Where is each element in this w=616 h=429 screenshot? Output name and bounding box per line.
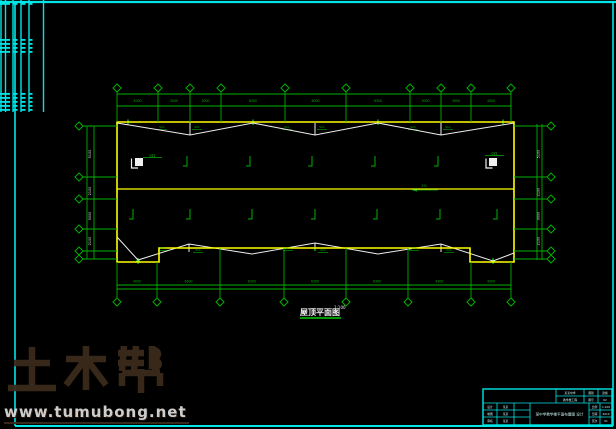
titleblock-cell: 01 xyxy=(604,419,608,423)
dim-text-vertical: 2100 xyxy=(537,237,541,246)
dim-text-vertical: 5100 xyxy=(537,150,541,159)
grid-bubble xyxy=(547,225,555,233)
column-symbol xyxy=(489,158,497,166)
brace-label: SC1 xyxy=(446,248,452,252)
grid-bubble xyxy=(406,84,414,92)
grid-bubble xyxy=(154,84,162,92)
grid-bubble xyxy=(467,84,475,92)
dim-text-vertical: 5100 xyxy=(88,150,92,159)
titleblock-cell: 某某中学 xyxy=(564,391,575,395)
column-mark xyxy=(186,209,190,219)
grid-bubble xyxy=(547,247,555,255)
grid-bubble xyxy=(547,255,555,263)
brace-label: SC1 xyxy=(445,125,451,129)
column-mark xyxy=(373,209,377,219)
grid-bubble xyxy=(437,84,445,92)
titleblock-cell: 建施 xyxy=(602,391,608,395)
grid-bubble xyxy=(547,122,555,130)
grid-bubble xyxy=(216,298,224,306)
building-outline xyxy=(117,122,514,262)
brace-label: SC1 xyxy=(319,125,325,129)
column-symbol xyxy=(135,158,143,166)
titleblock-cell: 审核 xyxy=(487,419,493,423)
grid-bubble xyxy=(507,84,515,92)
brace-label: SC1 xyxy=(411,246,417,250)
dim-text: 3000 xyxy=(201,99,209,103)
column-mark xyxy=(436,209,440,219)
column-mark xyxy=(434,156,438,166)
watermark-brand-icon xyxy=(4,340,172,398)
titleblock-cell: 比例 xyxy=(592,405,598,409)
column-mark xyxy=(129,209,133,219)
grid-bubble xyxy=(281,84,289,92)
dim-text-vertical: 3000 xyxy=(537,212,541,221)
brace-label: SC1 xyxy=(195,248,201,252)
column-mark xyxy=(246,156,250,166)
column-mark xyxy=(183,156,187,166)
grid-bubble xyxy=(75,255,83,263)
dim-text: 4000 xyxy=(487,99,495,103)
titleblock-cell: 某某 xyxy=(503,419,509,423)
titleblock-cell: 2010 xyxy=(602,412,609,416)
dim-text: 3000 xyxy=(170,99,178,103)
column-label-right: GZ1 xyxy=(491,152,497,156)
grid-bubble xyxy=(507,298,515,306)
brace-label: SC1 xyxy=(194,125,200,129)
dim-text: 6300 xyxy=(184,280,192,284)
dim-text: 3000 xyxy=(421,99,429,103)
watermark: www.tumubong.net xyxy=(4,340,184,424)
grid-bubble xyxy=(153,298,161,306)
titleblock-cell: 图别 xyxy=(588,391,594,395)
watermark-url: www.tumubong.net xyxy=(4,403,189,424)
cad-viewport[interactable]: GZ1 GZ1 2% 屋顶平面图 1:100 某中学教学楼平面布置图 设计 40… xyxy=(0,0,616,429)
dim-text-vertical: 3000 xyxy=(88,212,92,221)
dim-text: 4000 xyxy=(133,280,141,284)
grid-bubble xyxy=(75,122,83,130)
dim-text: 6300 xyxy=(311,280,319,284)
dim-text: 3000 xyxy=(452,99,460,103)
titleblock-cell: 02 xyxy=(603,398,607,402)
grid-bubble xyxy=(342,84,350,92)
dim-text: 6300 xyxy=(249,99,257,103)
titleblock-cell: 图号 xyxy=(588,398,594,402)
plan-caption-scale: 1:100 xyxy=(334,305,346,310)
grid-bubble xyxy=(186,84,194,92)
grid-bubble xyxy=(280,298,288,306)
dim-text: 6300 xyxy=(373,280,381,284)
titleblock-cell: 日期 xyxy=(592,412,598,416)
column-mark xyxy=(311,209,315,219)
brace-label: SC1 xyxy=(159,125,165,129)
dim-text-vertical: 2100 xyxy=(88,237,92,246)
dim-text: 4000 xyxy=(133,99,141,103)
column-mark xyxy=(308,156,312,166)
grid-bubble xyxy=(547,173,555,181)
titleblock-cell: 设计 xyxy=(487,405,493,409)
titleblock-cell: 某某 xyxy=(503,405,509,409)
brace-label: SC1 xyxy=(160,246,166,250)
brace-label: SC1 xyxy=(320,248,326,252)
grid-bubble xyxy=(113,84,121,92)
titleblock-cell: 制图 xyxy=(487,412,493,416)
grid-bubble xyxy=(467,298,475,306)
titleblock-cell: 页次 xyxy=(592,419,598,423)
dim-text-vertical: 2100 xyxy=(537,188,541,197)
column-mark xyxy=(493,209,497,219)
column-mark xyxy=(248,209,252,219)
titleblock-cell: 教学楼工程 xyxy=(563,398,577,402)
grid-bubble xyxy=(404,298,412,306)
titleblock-cell: 1:100 xyxy=(602,405,610,409)
dim-text: 6300 xyxy=(248,280,256,284)
grid-bubble xyxy=(75,173,83,181)
dim-text: 6300 xyxy=(374,99,382,103)
slope-label: 2% xyxy=(421,184,427,188)
column-mark xyxy=(371,156,375,166)
grid-bubble xyxy=(75,195,83,203)
dim-text: 6300 xyxy=(435,280,443,284)
grid-bubble xyxy=(113,298,121,306)
grid-bubble xyxy=(547,195,555,203)
titleblock-title: 某中学教学楼平面布置图 设计 xyxy=(536,412,584,417)
grid-bubble xyxy=(217,84,225,92)
brace-label: SC1 xyxy=(285,246,291,250)
brace-label: SC1 xyxy=(284,125,290,129)
dim-text-vertical: 2100 xyxy=(88,187,92,196)
grid-bubble xyxy=(75,247,83,255)
dim-text: 6000 xyxy=(311,99,319,103)
brace-label: SC1 xyxy=(410,125,416,129)
grid-bubble xyxy=(75,225,83,233)
dim-text: 4000 xyxy=(487,280,495,284)
column-label-left: GZ1 xyxy=(149,154,155,158)
titleblock-cell: 某某 xyxy=(503,412,509,416)
